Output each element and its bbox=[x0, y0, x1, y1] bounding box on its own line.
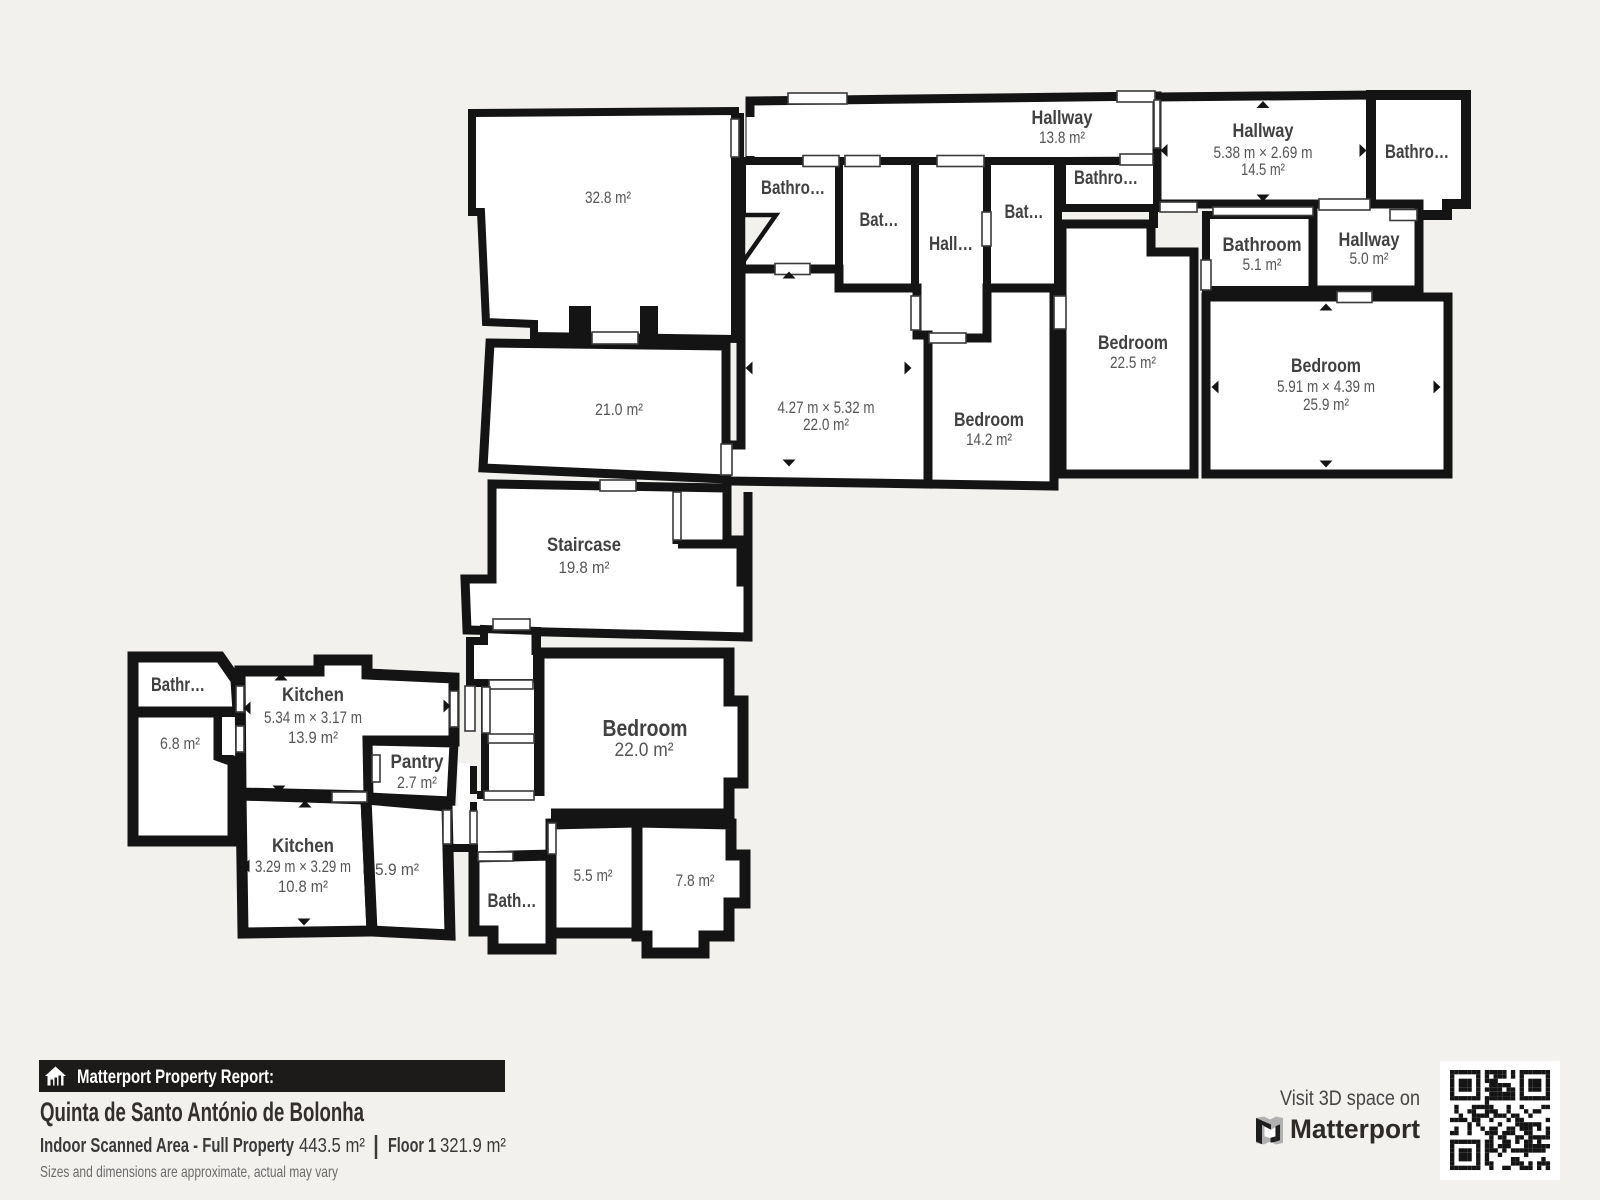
svg-text:6.8 m²: 6.8 m² bbox=[160, 735, 200, 753]
svg-text:Hallway: Hallway bbox=[1339, 230, 1400, 251]
svg-text:5.9 m²: 5.9 m² bbox=[375, 861, 419, 879]
svg-text:10.8 m²: 10.8 m² bbox=[278, 878, 328, 896]
svg-text:Bat…: Bat… bbox=[860, 210, 899, 231]
svg-text:Bedroom: Bedroom bbox=[1098, 333, 1168, 354]
svg-text:4.27 m × 5.32 m: 4.27 m × 5.32 m bbox=[778, 399, 875, 417]
svg-text:Quinta de Santo António de Bol: Quinta de Santo António de Bolonha bbox=[40, 1097, 365, 1127]
svg-text:Indoor Scanned Area - Full Pro: Indoor Scanned Area - Full Property bbox=[40, 1135, 295, 1157]
svg-text:13.9 m²: 13.9 m² bbox=[288, 729, 338, 747]
svg-text:7.8 m²: 7.8 m² bbox=[676, 872, 715, 890]
svg-text:Staircase: Staircase bbox=[547, 535, 621, 556]
svg-text:5.91 m × 4.39 m: 5.91 m × 4.39 m bbox=[1277, 378, 1375, 396]
svg-text:3.29 m × 3.29 m: 3.29 m × 3.29 m bbox=[255, 858, 351, 876]
svg-text:13.8 m²: 13.8 m² bbox=[1039, 129, 1085, 147]
svg-text:Hallway: Hallway bbox=[1233, 121, 1294, 142]
svg-text:Bedroom: Bedroom bbox=[1291, 356, 1361, 377]
svg-text:Hall…: Hall… bbox=[929, 234, 973, 255]
svg-text:Matterport Property Report:: Matterport Property Report: bbox=[77, 1067, 274, 1088]
svg-text:5.1 m²: 5.1 m² bbox=[1243, 256, 1282, 274]
svg-text:Floor 1: Floor 1 bbox=[388, 1135, 436, 1157]
svg-text:22.0 m²: 22.0 m² bbox=[803, 416, 849, 434]
svg-text:Matterport: Matterport bbox=[1290, 1114, 1420, 1144]
svg-text:19.8 m²: 19.8 m² bbox=[559, 559, 610, 577]
svg-text:Bedroom: Bedroom bbox=[603, 715, 688, 741]
svg-text:Kitchen: Kitchen bbox=[272, 836, 334, 857]
svg-text:Bath…: Bath… bbox=[488, 891, 537, 912]
svg-text:Bathro…: Bathro… bbox=[761, 178, 825, 199]
svg-text:Bat…: Bat… bbox=[1005, 202, 1044, 223]
svg-text:Sizes and dimensions are appro: Sizes and dimensions are approximate, ac… bbox=[40, 1164, 338, 1181]
svg-text:321.9 m²: 321.9 m² bbox=[440, 1135, 506, 1157]
svg-text:Pantry: Pantry bbox=[391, 752, 444, 773]
svg-text:14.5 m²: 14.5 m² bbox=[1241, 161, 1285, 179]
svg-text:2.7 m²: 2.7 m² bbox=[397, 774, 437, 792]
svg-text:5.34 m × 3.17 m: 5.34 m × 3.17 m bbox=[264, 709, 362, 727]
svg-text:32.8 m²: 32.8 m² bbox=[585, 189, 631, 207]
svg-text:443.5 m²: 443.5 m² bbox=[299, 1135, 365, 1157]
svg-text:25.9 m²: 25.9 m² bbox=[1303, 396, 1349, 414]
svg-text:5.38 m × 2.69 m: 5.38 m × 2.69 m bbox=[1214, 144, 1313, 162]
svg-text:22.0 m²: 22.0 m² bbox=[615, 740, 674, 761]
svg-text:Bathro…: Bathro… bbox=[1074, 168, 1138, 189]
svg-text:Bedroom: Bedroom bbox=[954, 410, 1024, 431]
svg-text:Kitchen: Kitchen bbox=[282, 685, 344, 706]
svg-text:21.0 m²: 21.0 m² bbox=[595, 401, 643, 419]
svg-text:Hallway: Hallway bbox=[1032, 108, 1093, 129]
svg-text:Bathro…: Bathro… bbox=[1385, 142, 1449, 163]
svg-text:Bathroom: Bathroom bbox=[1223, 235, 1302, 256]
svg-text:14.2 m²: 14.2 m² bbox=[966, 431, 1012, 449]
svg-text:Visit 3D space on: Visit 3D space on bbox=[1280, 1087, 1420, 1110]
svg-text:5.5 m²: 5.5 m² bbox=[574, 867, 613, 885]
svg-text:22.5 m²: 22.5 m² bbox=[1110, 354, 1156, 372]
svg-text:5.0 m²: 5.0 m² bbox=[1350, 250, 1389, 268]
svg-text:Bathr…: Bathr… bbox=[151, 675, 205, 696]
